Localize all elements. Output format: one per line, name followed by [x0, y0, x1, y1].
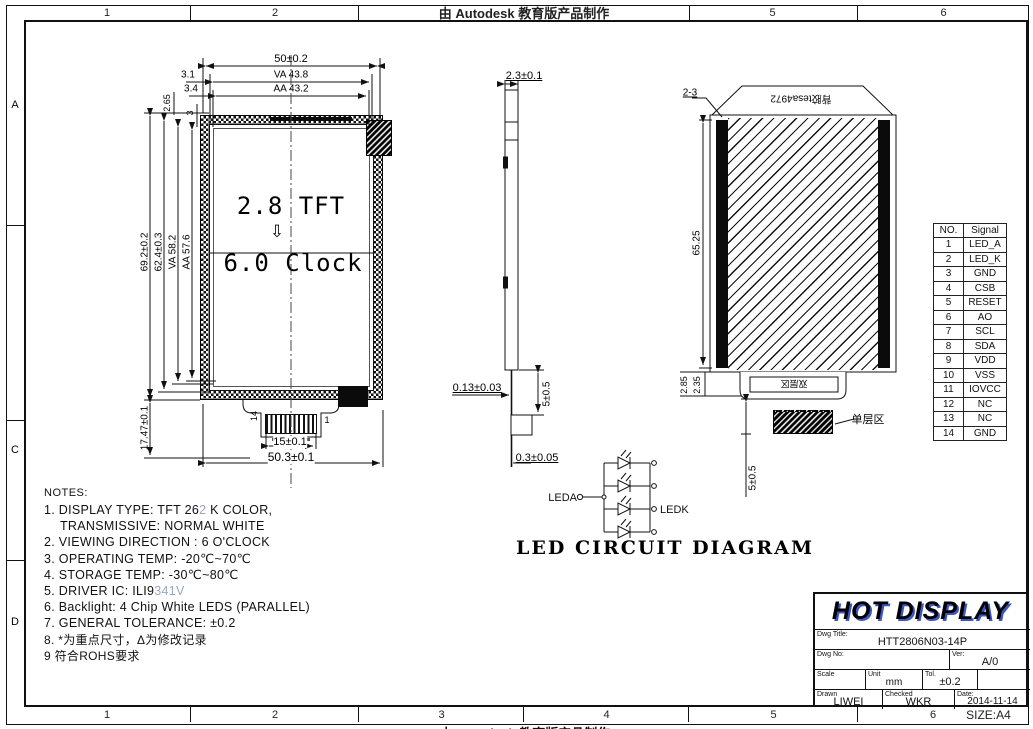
pin-table-cell: 6	[934, 310, 964, 325]
pin-table-cell: 1	[934, 238, 964, 253]
pin-table-row: 12NC	[934, 397, 1007, 412]
pin-table-cell: SCL	[964, 325, 1007, 340]
note-line: 2. VIEWING DIRECTION : 6 O'CLOCK	[44, 534, 394, 550]
pin-table-cell: 11	[934, 383, 964, 398]
dim-offset-265: 2.65	[162, 94, 172, 112]
dim-bottom-width: 50.3±0.1	[268, 450, 315, 464]
pin-table-cell: 14	[934, 426, 964, 441]
connector-pin14-label: 14	[249, 411, 259, 421]
led-anode-label: LEDA	[548, 492, 577, 504]
dim-offset-34: 3.4	[184, 84, 198, 95]
notes-block: NOTES: 1. DISPLAY TYPE: TFT 262 K COLOR,…	[44, 487, 394, 664]
scale-label: Scale	[817, 671, 835, 678]
notes-title: NOTES:	[44, 487, 394, 499]
viewing-direction-arrow-icon: ⇩	[270, 222, 284, 242]
col-header-signal: Signal	[964, 224, 1007, 238]
pin-table-cell: LED_A	[964, 238, 1007, 253]
version-cell: Ver: A/0	[949, 649, 1030, 669]
pin-table-row: 13NC	[934, 412, 1007, 427]
dim-fpc-thickness: 0.13±0.03	[453, 382, 502, 394]
pin-table-cell: GND	[964, 426, 1007, 441]
note-line: 9 符合ROHS要求	[44, 648, 394, 664]
dim-tail-length: 17.47±0.1	[140, 406, 151, 450]
col-header-no: NO.	[934, 224, 964, 238]
pin-table-cell: 2	[934, 252, 964, 267]
dim-back-step1: 2.85	[679, 376, 689, 394]
date-value: 2014-11-14	[955, 696, 1030, 707]
note-line: 7. GENERAL TOLERANCE: ±0.2	[44, 615, 394, 631]
dim-width-va: VA 43.8	[274, 70, 308, 81]
pin-table-cell: CSB	[964, 281, 1007, 296]
pin-table-cell: VSS	[964, 368, 1007, 383]
dim-height-aa: AA 57.6	[182, 234, 193, 269]
led-circuit-caption: LED CIRCUIT DIAGRAM	[516, 537, 814, 559]
pin-table-cell: 5	[934, 296, 964, 311]
dim-tip-thickness: 0.3±0.05	[516, 452, 559, 464]
pin-table-row: 4CSB	[934, 281, 1007, 296]
pin-table-row: 8SDA	[934, 339, 1007, 354]
note-line: TRANSMISSIVE: NORMAL WHITE	[44, 518, 394, 534]
pin-table-cell: VDD	[964, 354, 1007, 369]
note-line: 4. STORAGE TEMP: -30℃~80℃	[44, 567, 394, 583]
autodesk-stamp-clipped: 由 Autodesk 教育版产品制作	[360, 723, 690, 729]
tolerance-cell: Tol. ±0.2	[922, 669, 977, 689]
dim-height-total: 69.2±0.2	[140, 233, 151, 272]
back-corner-callout: 2-3	[683, 88, 697, 99]
led-circuit: LEDA LEDK	[548, 450, 689, 538]
led-cathode-label: LEDK	[660, 504, 689, 516]
note-line: 8. *为重点尺寸，Δ为修改记录	[44, 632, 394, 648]
pin-table-cell: IOVCC	[964, 383, 1007, 398]
pin-table-cell: AO	[964, 310, 1007, 325]
dim-back-height: 65.25	[692, 230, 703, 255]
pin-table-row: 14GND	[934, 426, 1007, 441]
dwg-no-label: Dwg No:	[817, 651, 844, 658]
dim-width-total: 50±0.2	[274, 53, 308, 65]
dwg-title-value: HTT2806N03-14P	[815, 636, 1030, 648]
clock-direction-label: 6.0 Clock	[223, 249, 362, 277]
adhesive-tape-label: 背胶tesa4972	[770, 93, 831, 108]
pin-table-cell: NC	[964, 412, 1007, 427]
pin-table-row: 11IOVCC	[934, 383, 1007, 398]
dim-back-tail: 5±0.5	[748, 466, 759, 491]
drawn-cell: Drawn LIWEI	[815, 689, 882, 709]
drawn-value: LIWEI	[815, 696, 882, 708]
dim-height-va: VA 58.2	[168, 235, 179, 269]
dwg-no-cell: Dwg No:	[815, 649, 949, 669]
pin-table-row: 5RESET	[934, 296, 1007, 311]
pin-table-row: 3GND	[934, 267, 1007, 282]
checked-value: WKR	[883, 696, 954, 708]
date-cell: Date: 2014-11-14	[954, 689, 1030, 709]
pin-table-row: 9VDD	[934, 354, 1007, 369]
pin-table-cell: GND	[964, 267, 1007, 282]
unit-cell: Unit mm	[865, 669, 922, 689]
tolerance-value: ±0.2	[923, 676, 977, 688]
note-line: 6. Backlight: 4 Chip White LEDS (PARALLE…	[44, 599, 394, 615]
pin-table-row: 10VSS	[934, 368, 1007, 383]
dim-back-step2: 2.35	[692, 376, 702, 394]
dim-height-62: 62.4±0.3	[154, 233, 165, 272]
double-layer-zone-label: 双层区	[780, 378, 807, 391]
pin-signal-table: NO. Signal 1LED_A2LED_K3GND4CSB5RESET6AO…	[933, 223, 1007, 441]
title-block: HOT DISPLAY Dwg Title: HTT2806N03-14P Dw…	[813, 592, 1028, 707]
single-layer-zone-label: 单层区	[852, 411, 885, 427]
note-line: 5. DRIVER IC: ILI9341V	[44, 583, 394, 599]
dim-offset-3: 3	[185, 110, 195, 115]
unit-value: mm	[866, 677, 922, 688]
connector-pin1-label: 1	[324, 415, 329, 425]
pin-table-cell: LED_K	[964, 252, 1007, 267]
pin-table-cell: 4	[934, 281, 964, 296]
pin-table-cell: 7	[934, 325, 964, 340]
note-line: 1. DISPLAY TYPE: TFT 262 K COLOR,	[44, 502, 394, 518]
engineering-drawing-sheet: 1 2 由 Autodesk 教育版产品制作 5 6 1 2 3 4 5 6 S…	[0, 0, 1033, 729]
pin-table-row: 7SCL	[934, 325, 1007, 340]
table-header-row: NO. Signal	[934, 224, 1007, 238]
dwg-title-cell: Dwg Title: HTT2806N03-14P	[815, 629, 1030, 649]
projection-cell	[977, 669, 1030, 689]
checked-cell: Checked WKR	[882, 689, 954, 709]
pin-table-cell: RESET	[964, 296, 1007, 311]
dim-side-tail: 5±0.5	[542, 382, 553, 407]
dim-offset-31: 3.1	[181, 70, 195, 81]
dim-connector-width: 15±0.1	[273, 436, 307, 448]
dim-thickness: 2.3±0.1	[506, 70, 543, 82]
display-size-label: 2.8 TFT	[237, 192, 345, 220]
pin-table-cell: 12	[934, 397, 964, 412]
pin-table-cell: 10	[934, 368, 964, 383]
note-line: 3. OPERATING TEMP: -20℃~70℃	[44, 551, 394, 567]
scale-cell: Scale	[815, 669, 865, 689]
pin-table-cell: NC	[964, 397, 1007, 412]
pin-table-cell: 3	[934, 267, 964, 282]
pin-table-cell: 8	[934, 339, 964, 354]
pin-table-row: 2LED_K	[934, 252, 1007, 267]
version-value: A/0	[950, 656, 1030, 668]
pin-table-cell: SDA	[964, 339, 1007, 354]
pin-table-row: 1LED_A	[934, 238, 1007, 253]
pin-table-cell: 9	[934, 354, 964, 369]
pin-table-row: 6AO	[934, 310, 1007, 325]
pin-table-cell: 13	[934, 412, 964, 427]
company-name: HOT DISPLAY	[815, 597, 1026, 626]
dim-width-aa: AA 43.2	[273, 84, 308, 95]
